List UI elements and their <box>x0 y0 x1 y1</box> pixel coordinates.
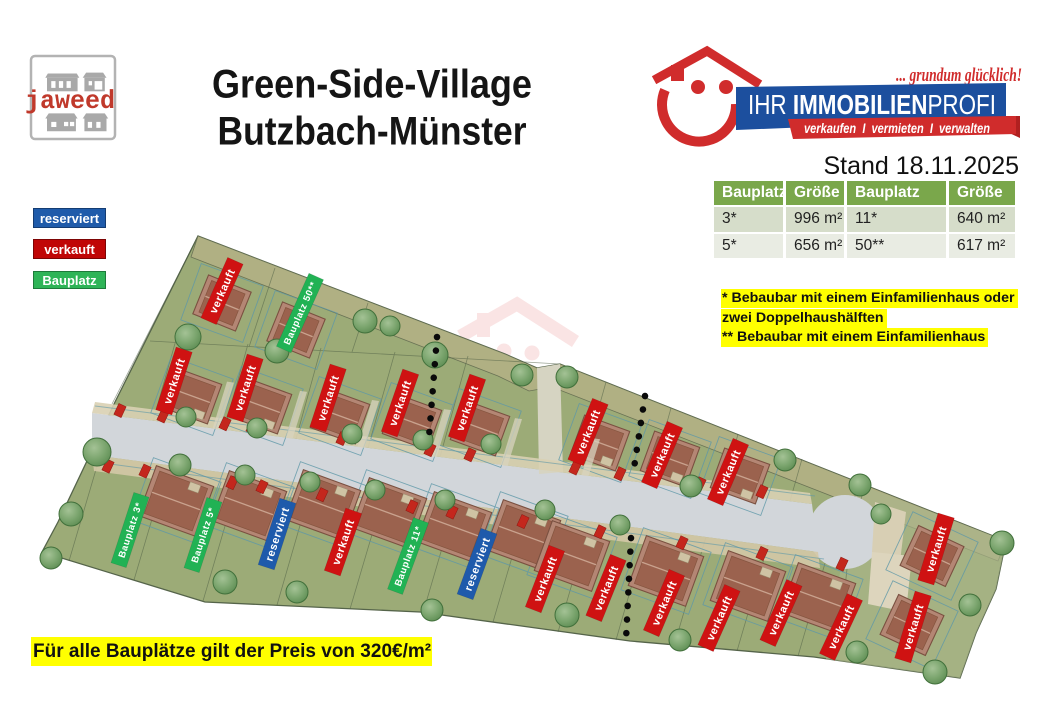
svg-text:verkaufen I vermieten I ve: verkaufen I vermieten I verwalten <box>804 121 990 136</box>
svg-text:IHR IMMOBILIENPROFI: IHR IMMOBILIENPROFI <box>748 89 996 120</box>
svg-text:Butzbach-Münster: Butzbach-Münster <box>218 110 527 154</box>
svg-text:... grundum glücklich!: ... grundum glücklich! <box>896 65 1022 86</box>
svg-text:Green-Side-Village: Green-Side-Village <box>212 63 532 107</box>
